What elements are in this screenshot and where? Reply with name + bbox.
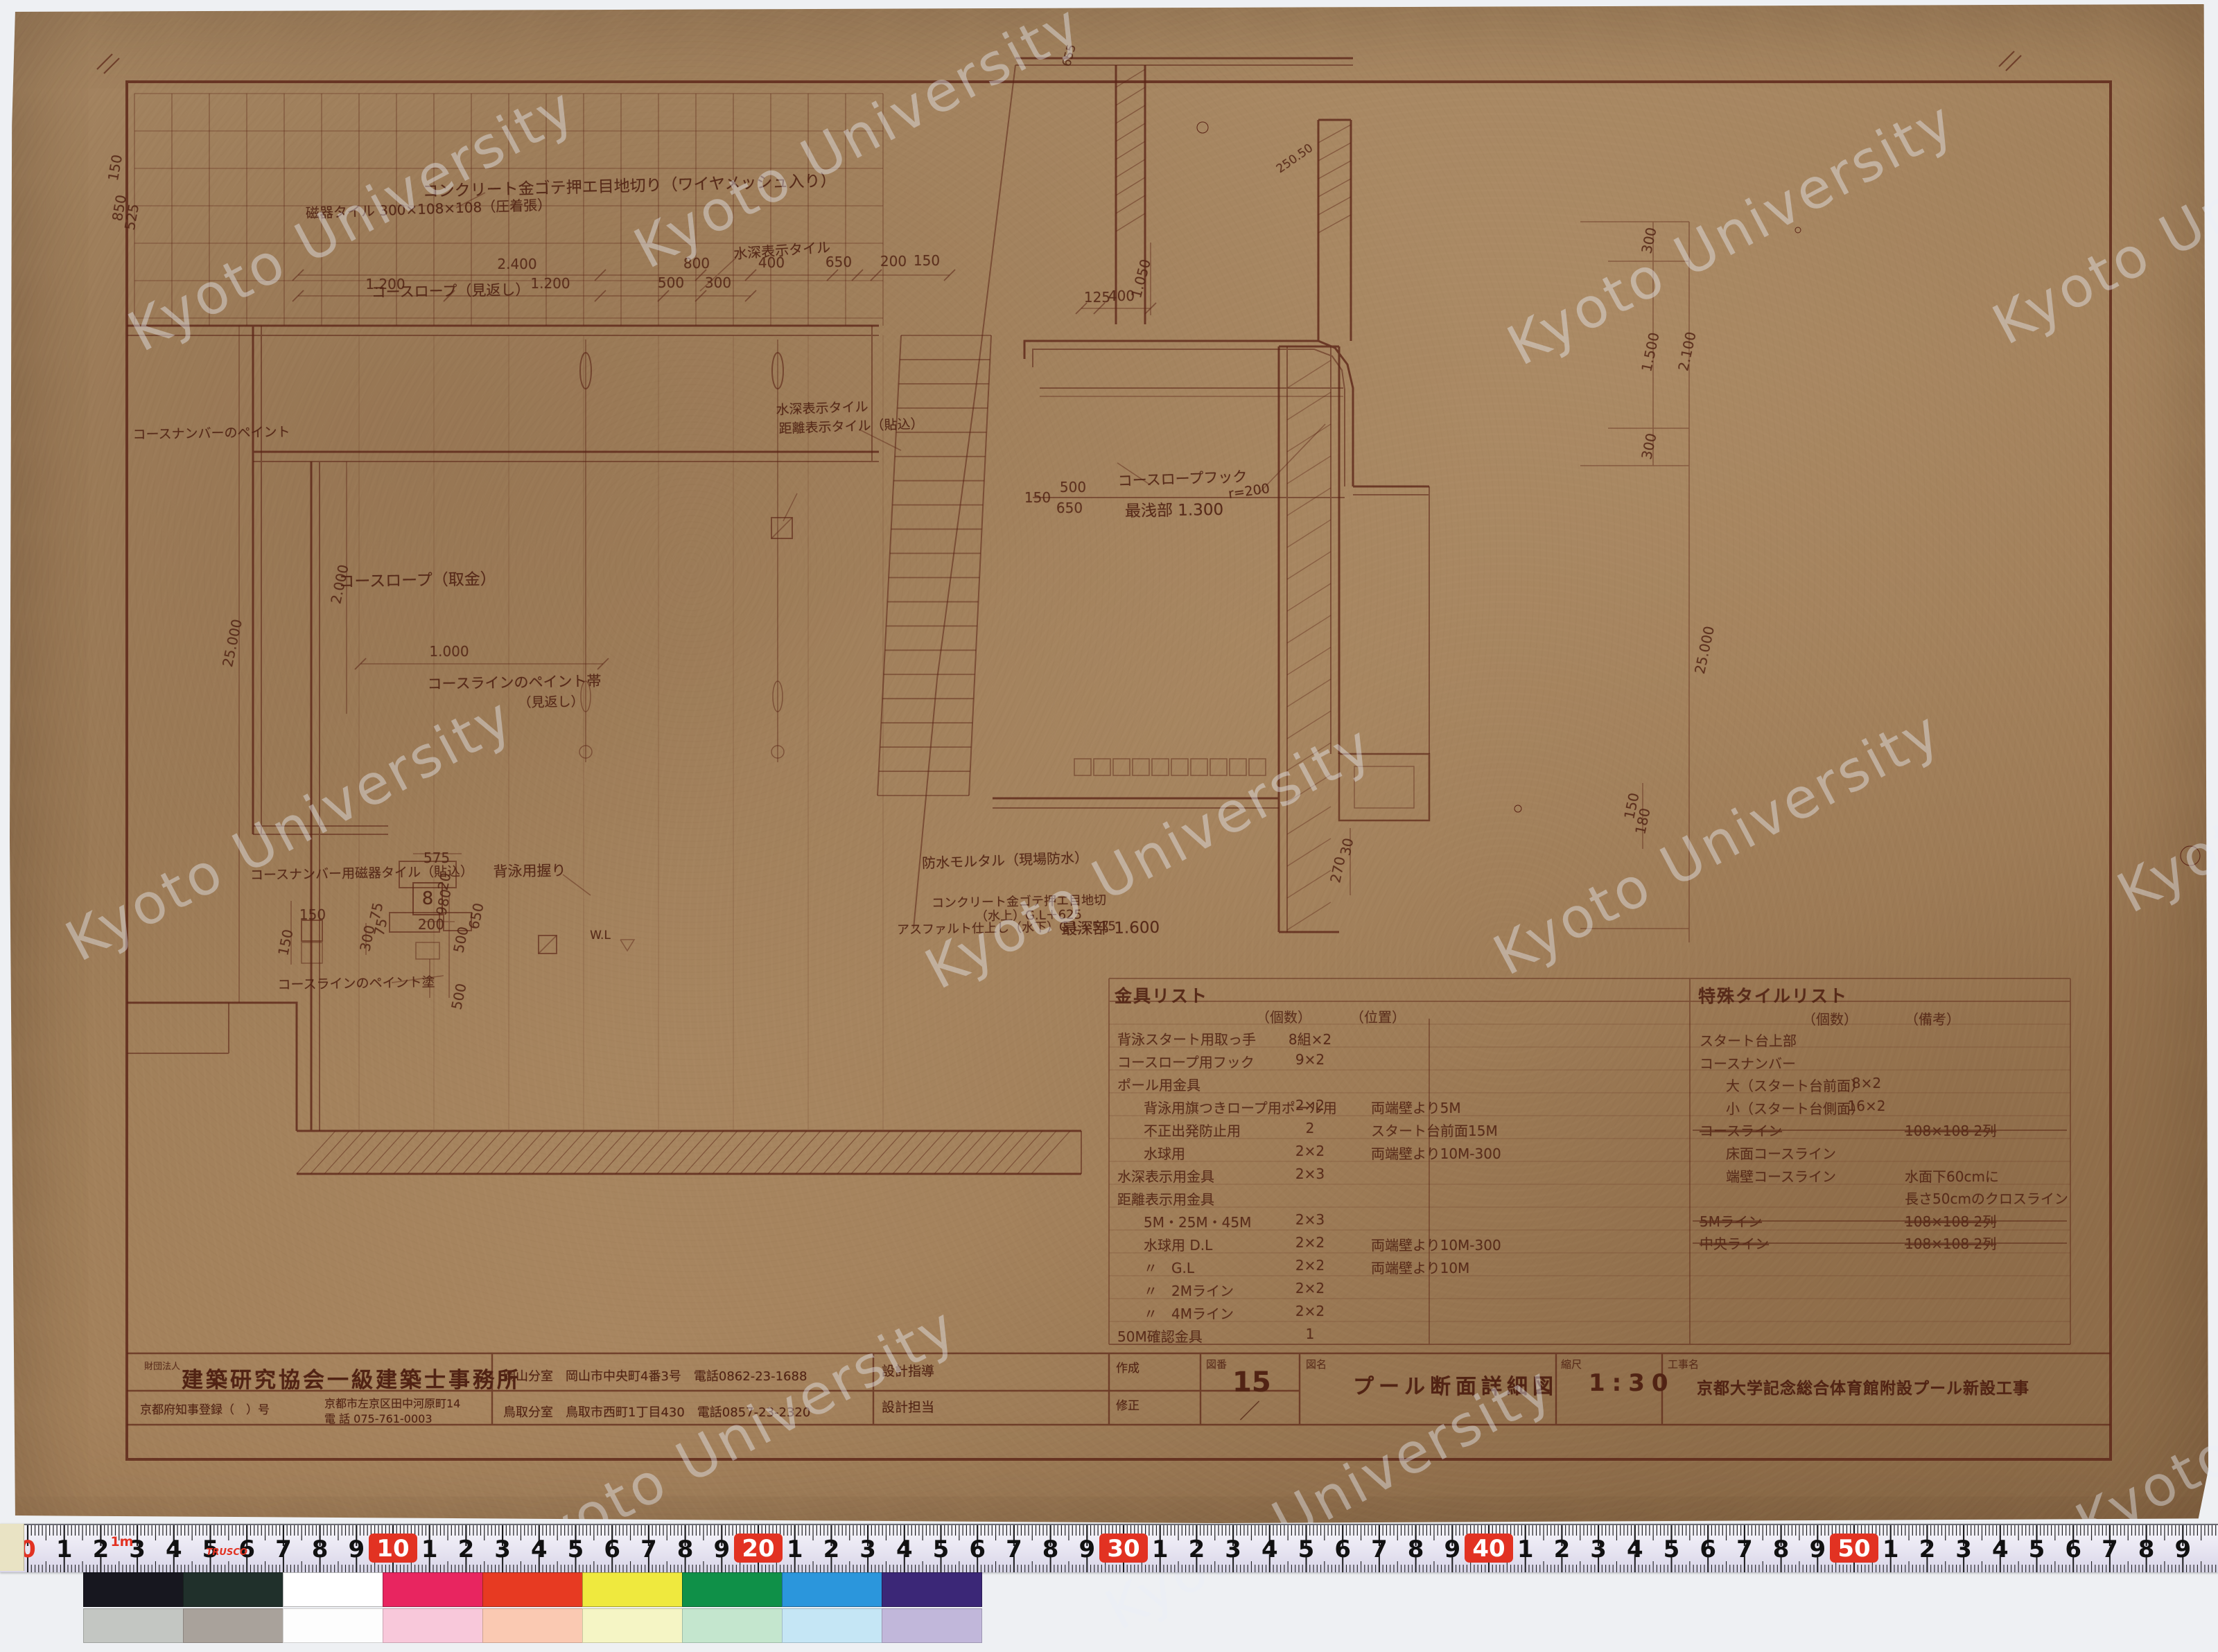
kyoto-tel: 電 話 075-761-0003 xyxy=(324,1409,433,1426)
calibration-patch xyxy=(682,1572,783,1607)
svg-text:5: 5 xyxy=(568,1536,584,1563)
dimension-label: 1.200 xyxy=(365,276,405,292)
svg-text:7: 7 xyxy=(1371,1536,1388,1563)
drawing-label: 8 xyxy=(422,888,434,909)
svg-text:4: 4 xyxy=(531,1536,548,1563)
calibration-patch xyxy=(383,1608,483,1643)
drawing-label: （見返し） xyxy=(518,692,584,712)
scale-label: 縮尺 xyxy=(1561,1357,1582,1371)
svg-text:3: 3 xyxy=(859,1536,876,1563)
svg-text:1: 1 xyxy=(787,1536,803,1563)
revision-mark: ／ xyxy=(1239,1394,1260,1425)
calibration-patch xyxy=(482,1608,583,1643)
svg-text:5: 5 xyxy=(933,1536,950,1563)
svg-text:9: 9 xyxy=(1079,1536,1095,1563)
svg-text:7: 7 xyxy=(2102,1536,2118,1563)
svg-text:9: 9 xyxy=(1809,1536,1826,1563)
okayama-office: 岡山分室 岡山市中央町4番3号 電話0862-23-1688 xyxy=(503,1367,807,1385)
svg-text:7: 7 xyxy=(275,1536,292,1563)
svg-text:1: 1 xyxy=(1883,1536,1899,1563)
dimension-label: 1.000 xyxy=(429,643,469,660)
dimension-label: 200 xyxy=(418,916,444,933)
dimension-label: 200 xyxy=(880,253,907,270)
svg-text:30: 30 xyxy=(1107,1535,1139,1563)
svg-text:3: 3 xyxy=(1590,1536,1607,1563)
svg-text:6: 6 xyxy=(604,1536,620,1563)
dimension-label: 575 xyxy=(423,850,450,866)
svg-text:10: 10 xyxy=(376,1535,409,1563)
dimension-label: 650 xyxy=(826,254,852,270)
svg-text:1: 1 xyxy=(421,1536,438,1563)
svg-text:9: 9 xyxy=(348,1536,365,1563)
svg-text:3: 3 xyxy=(494,1536,511,1563)
calibration-patch xyxy=(383,1572,483,1607)
firm-prefix: 財団法人 xyxy=(144,1362,180,1372)
svg-text:5: 5 xyxy=(1663,1536,1680,1563)
calibration-patch xyxy=(482,1572,583,1607)
calibration-patch xyxy=(682,1608,783,1643)
calibration-patch xyxy=(83,1572,184,1607)
svg-text:2: 2 xyxy=(1554,1536,1571,1563)
svg-text:1m: 1m xyxy=(110,1534,133,1549)
svg-text:4: 4 xyxy=(1992,1536,2009,1563)
dimension-label: 150 xyxy=(299,906,326,923)
drawing-label: コースラインのペイント帯 xyxy=(427,670,601,694)
svg-text:3: 3 xyxy=(1225,1536,1241,1563)
svg-text:8: 8 xyxy=(2138,1536,2155,1563)
svg-text:7: 7 xyxy=(1006,1536,1022,1563)
svg-text:8: 8 xyxy=(312,1536,329,1563)
drawing-label: W.L xyxy=(590,929,611,942)
dimension-label: 650 xyxy=(1056,500,1083,516)
svg-text:8: 8 xyxy=(1408,1536,1424,1563)
dimension-label: 2.400 xyxy=(497,256,536,272)
svg-text:4: 4 xyxy=(1261,1536,1278,1563)
calibration-patch xyxy=(183,1608,283,1643)
calibration-patch xyxy=(283,1608,383,1643)
svg-text:9: 9 xyxy=(713,1536,730,1563)
calibration-patch xyxy=(83,1608,184,1643)
svg-text:2: 2 xyxy=(93,1536,110,1563)
svg-text:6: 6 xyxy=(1334,1536,1351,1563)
scale-ruler: 0123456789101234567892012345678930123456… xyxy=(0,1524,2218,1572)
svg-text:4: 4 xyxy=(896,1536,913,1563)
svg-text:2: 2 xyxy=(1919,1536,1936,1563)
project-label: 工事名 xyxy=(1668,1357,1699,1371)
drawing-name-label: 図名 xyxy=(1306,1357,1327,1371)
ruler-end-cap xyxy=(0,1524,24,1571)
calibration-patch xyxy=(283,1572,383,1607)
svg-text:5: 5 xyxy=(2029,1536,2045,1563)
svg-text:40: 40 xyxy=(1472,1535,1505,1563)
dimension-label: 300 xyxy=(705,274,731,291)
svg-text:2: 2 xyxy=(823,1536,840,1563)
svg-text:6: 6 xyxy=(2065,1536,2081,1563)
calibration-patch xyxy=(582,1608,683,1643)
registration: 京都府知事登録（ ）号 xyxy=(140,1400,270,1417)
svg-text:9: 9 xyxy=(1444,1536,1460,1563)
svg-text:6: 6 xyxy=(1700,1536,1716,1563)
svg-text:3: 3 xyxy=(1955,1536,1972,1563)
svg-text:7: 7 xyxy=(640,1536,657,1563)
svg-text:2: 2 xyxy=(458,1536,475,1563)
svg-text:8: 8 xyxy=(677,1536,694,1563)
created-label: 作成 xyxy=(1116,1358,1139,1376)
firm-name: 建築研究協会一級建築士事務所 xyxy=(182,1362,521,1394)
dimension-label: 150 xyxy=(1024,489,1051,506)
svg-text:9: 9 xyxy=(2174,1536,2191,1563)
calibration-patch xyxy=(183,1572,283,1607)
drawing-label: 水深表示タイル xyxy=(776,396,868,419)
revised-label: 修正 xyxy=(1116,1396,1139,1413)
svg-text:7: 7 xyxy=(1736,1536,1753,1563)
dimension-label: 125 xyxy=(1084,289,1110,306)
svg-text:1: 1 xyxy=(1152,1536,1169,1563)
svg-text:1: 1 xyxy=(56,1536,73,1563)
svg-text:20: 20 xyxy=(742,1535,774,1563)
calibration-patch xyxy=(582,1572,683,1607)
project-name: 京都大学記念総合体育館附設プール新設工事 xyxy=(1697,1375,2029,1398)
design-charge-label: 設計担当 xyxy=(882,1397,934,1416)
svg-text:50: 50 xyxy=(1837,1535,1870,1563)
svg-text:8: 8 xyxy=(1042,1536,1059,1563)
drawing-label: 最浅部 1.300 xyxy=(1125,496,1224,521)
calibration-patch xyxy=(782,1608,882,1643)
dimension-label: 150 xyxy=(914,252,940,269)
svg-text:4: 4 xyxy=(1627,1536,1643,1563)
dimension-label: 1.200 xyxy=(530,275,570,292)
svg-text:6: 6 xyxy=(969,1536,986,1563)
scale-value: 1:30 xyxy=(1589,1369,1675,1397)
calibration-patch xyxy=(882,1572,982,1607)
svg-text:2: 2 xyxy=(1189,1536,1205,1563)
dimension-label: 500 xyxy=(1060,479,1086,495)
svg-text:TRUSCO: TRUSCO xyxy=(207,1547,247,1558)
svg-text:1: 1 xyxy=(1517,1536,1534,1563)
drawing-label: コースラインのペイント塗 xyxy=(277,972,435,994)
calibration-patch xyxy=(882,1608,982,1643)
drawing-label: コースロープ（取金） xyxy=(338,565,496,592)
dimension-label: 400 xyxy=(758,254,785,271)
drawing-label: 背泳用握り xyxy=(493,859,566,881)
scanned-blueprint-page: コンクリート金ゴテ押エ目地切り（ワイヤメッシュ入り）磁器タイル 300×108×… xyxy=(0,0,2218,1652)
svg-text:4: 4 xyxy=(166,1536,182,1563)
drawing-label: コースナンバーのペイント xyxy=(132,422,290,443)
calibration-patch xyxy=(782,1572,882,1607)
svg-text:5: 5 xyxy=(1298,1536,1315,1563)
drawing-no-label: 図番 xyxy=(1206,1357,1227,1371)
svg-text:8: 8 xyxy=(1773,1536,1790,1563)
ruler-graduations: 0123456789101234567892012345678930123456… xyxy=(0,1525,2218,1572)
kyoto-address: 京都市左京区田中河原町14 xyxy=(324,1394,460,1411)
